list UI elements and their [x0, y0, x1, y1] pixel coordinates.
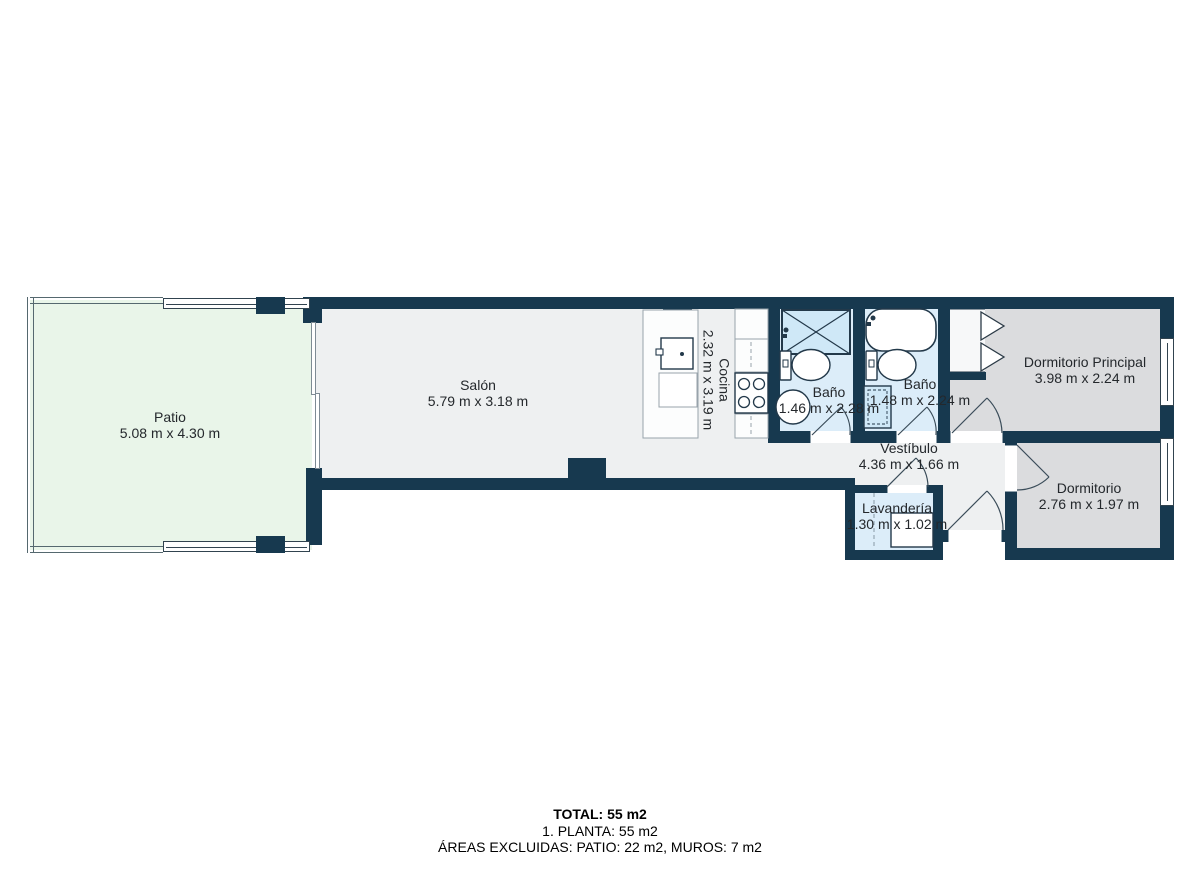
room-label-dormitorio: Dormitorio 2.76 m x 1.97 m	[1039, 481, 1139, 512]
room-dims: 2.76 m x 1.97 m	[1039, 497, 1139, 513]
room-label-patio: Patio 5.08 m x 4.30 m	[120, 410, 220, 441]
floor-area: 1. PLANTA: 55 m2	[0, 823, 1200, 840]
toilet-icon	[780, 350, 830, 381]
room-dims: 3.98 m x 2.24 m	[1024, 371, 1146, 387]
room-name: Baño	[870, 377, 970, 393]
excluded-areas: ÁREAS EXCLUIDAS: PATIO: 22 m2, MUROS: 7 …	[0, 839, 1200, 856]
kitchen-counter	[735, 309, 768, 438]
room-dims: 4.36 m x 1.66 m	[859, 457, 959, 473]
room-name: Salón	[428, 378, 528, 394]
room-name: Dormitorio	[1039, 481, 1139, 497]
total-area: TOTAL: 55 m2	[0, 806, 1200, 823]
room-name: Baño	[779, 385, 879, 401]
area-summary: TOTAL: 55 m2 1. PLANTA: 55 m2 ÁREAS EXCL…	[0, 806, 1200, 856]
room-label-bano-2: Baño 1.48 m x 2.24 m	[870, 377, 970, 408]
room-dims: 5.79 m x 3.18 m	[428, 394, 528, 410]
room-name: Patio	[120, 410, 220, 426]
bathtub-icon	[866, 309, 936, 351]
room-label-bano-1: Baño 1.46 m x 2.28 m	[779, 385, 879, 416]
room-dims: 5.08 m x 4.30 m	[120, 426, 220, 442]
floorplan: Patio 5.08 m x 4.30 m Salón 5.79 m x 3.1…	[0, 0, 1200, 869]
room-label-salon: Salón 5.79 m x 3.18 m	[428, 378, 528, 409]
stove-icon	[735, 373, 768, 413]
room-label-dormitorio-principal: Dormitorio Principal 3.98 m x 2.24 m	[1024, 355, 1146, 386]
room-dims: 1.30 m x 1.02 m	[847, 517, 947, 533]
closet-doors-icon	[981, 312, 1004, 371]
room-label-lavanderia: Lavandería 1.30 m x 1.02 m	[847, 501, 947, 532]
room-label-cocina: Cocina 2.32 m x 3.19 m	[701, 330, 732, 430]
room-dims: 2.32 m x 3.19 m	[701, 330, 717, 430]
room-dims: 1.46 m x 2.28 m	[779, 401, 879, 417]
room-name: Dormitorio Principal	[1024, 355, 1146, 371]
kitchen-sink-icon	[656, 338, 693, 369]
room-dims: 1.48 m x 2.24 m	[870, 393, 970, 409]
shower-icon	[781, 310, 850, 354]
room-name: Lavandería	[847, 501, 947, 517]
room-name: Vestíbulo	[859, 441, 959, 457]
room-name: Cocina	[716, 330, 732, 430]
kitchen-island	[643, 310, 698, 438]
room-label-vestibulo: Vestíbulo 4.36 m x 1.66 m	[859, 441, 959, 472]
